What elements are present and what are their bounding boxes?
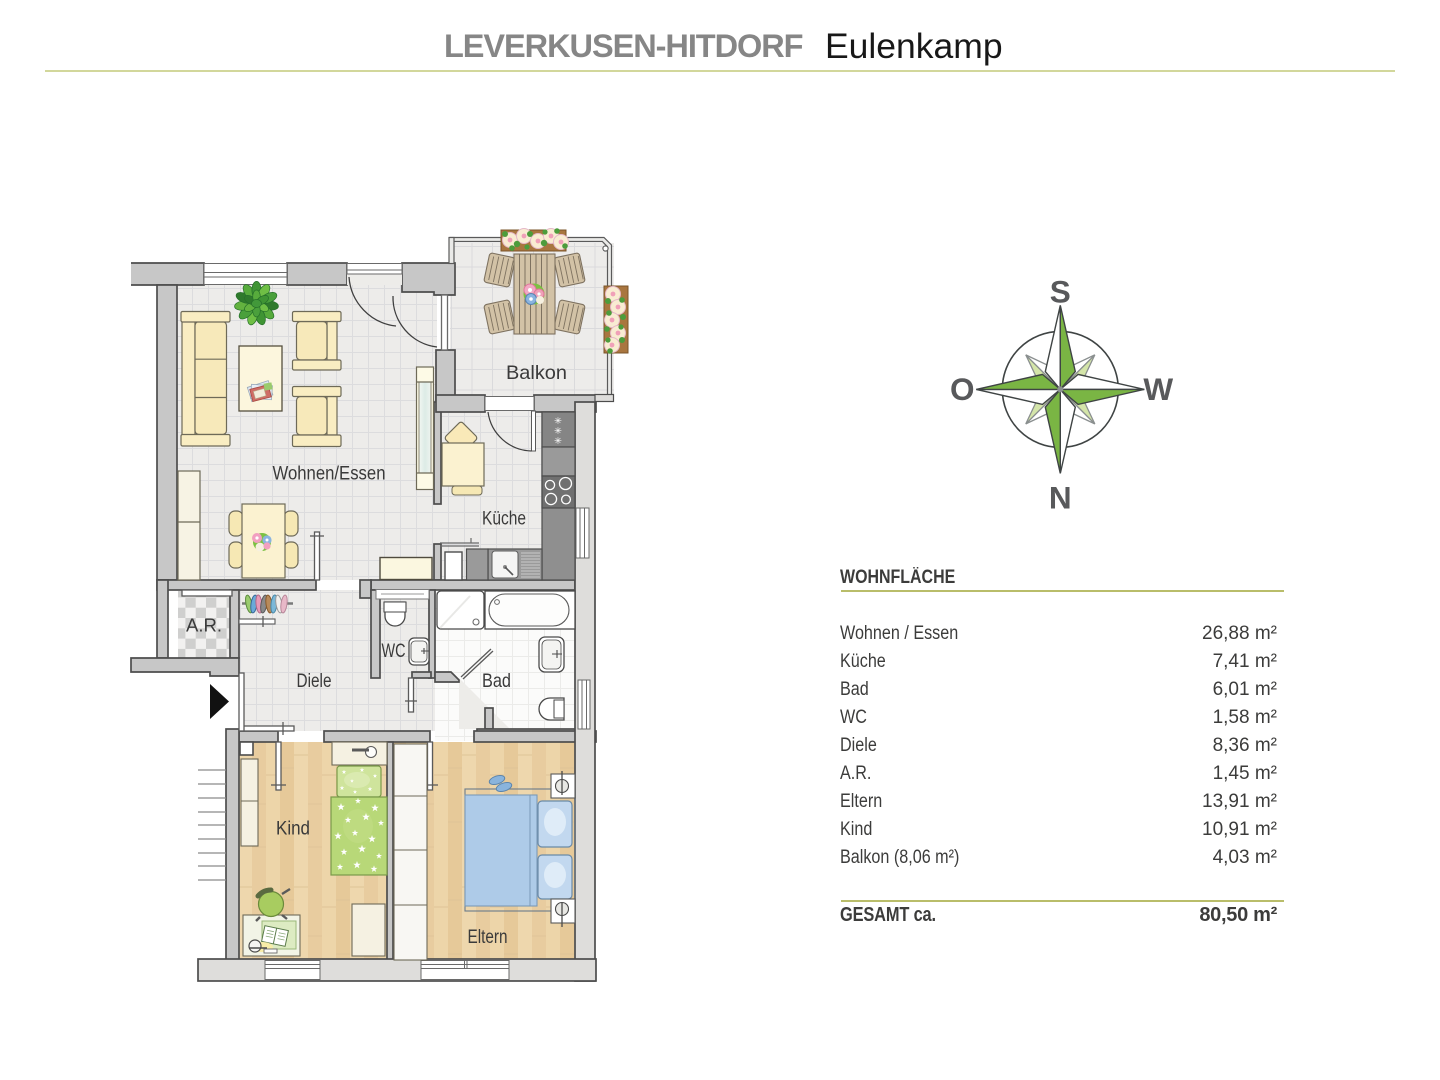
svg-text:Eltern: Eltern: [468, 926, 508, 948]
svg-text:W: W: [1143, 371, 1173, 407]
svg-text:S: S: [1050, 273, 1071, 309]
svg-text:WC: WC: [382, 640, 406, 662]
svg-text:A.R.: A.R.: [186, 615, 222, 636]
svg-text:✳: ✳: [554, 436, 562, 447]
svg-text:Küche: Küche: [482, 508, 526, 530]
svg-text:Bad: Bad: [482, 670, 511, 692]
svg-text:Wohnen/Essen: Wohnen/Essen: [273, 463, 386, 485]
svg-text:N: N: [1049, 479, 1072, 515]
svg-text:Balkon: Balkon: [506, 362, 567, 384]
svg-text:Diele: Diele: [297, 670, 332, 692]
svg-text:O: O: [950, 371, 975, 407]
svg-text:Kind: Kind: [276, 818, 310, 840]
